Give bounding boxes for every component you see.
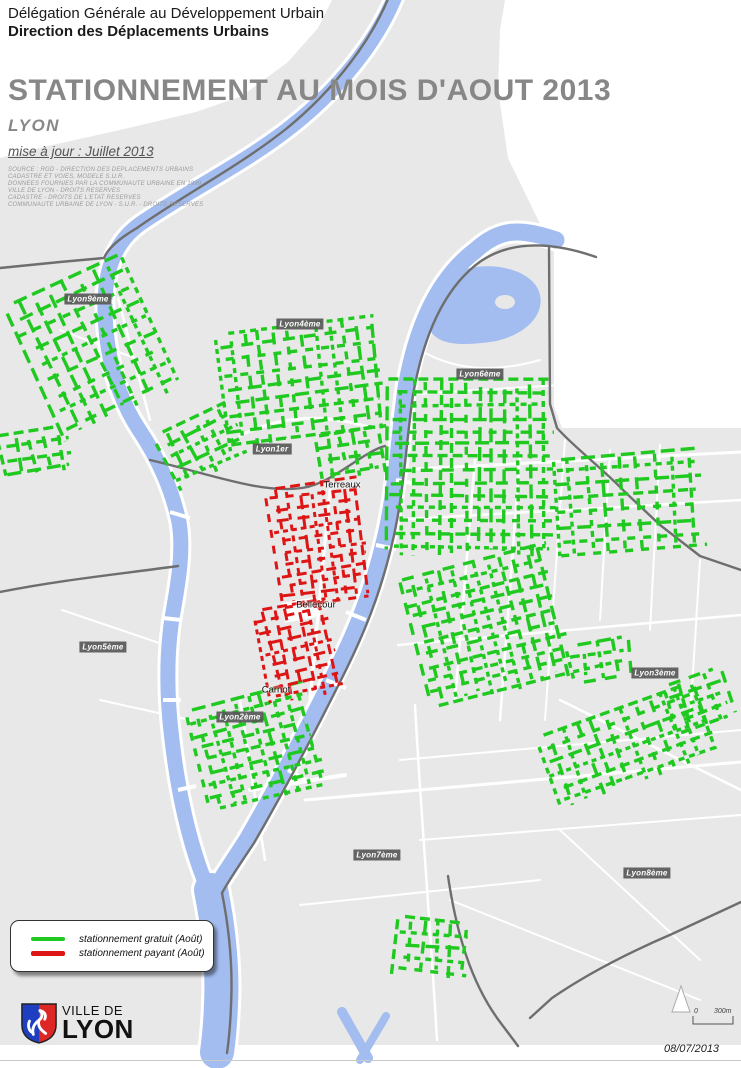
legend-item: stationnement payant (Août) [11, 948, 213, 959]
org-line-1: Délégation Générale au Développement Urb… [8, 5, 611, 22]
update-note: mise à jour : Juillet 2013 [8, 144, 154, 159]
legend-label: stationnement gratuit (Août) [79, 934, 202, 945]
scale-zero: 0 [694, 1008, 698, 1015]
page-subtitle: LYON [8, 116, 611, 136]
page-title: STATIONNEMENT AU MOIS D'AOUT 2013 [8, 74, 611, 108]
source-line: CADASTRE ET VOIES, MODELE S.U.R. [8, 174, 611, 181]
lyon-shield-icon [20, 1002, 58, 1044]
logo-texts: VILLE DE LYON [62, 1002, 134, 1041]
gratuit-line-swatch [31, 937, 65, 941]
source-line: VILLE DE LYON - DROITS RESERVES [8, 188, 611, 195]
lake-island [495, 295, 515, 309]
header: Délégation Générale au Développement Urb… [8, 5, 611, 209]
gratuit-segment [396, 507, 556, 508]
org-line-2: Direction des Déplacements Urbains [8, 23, 611, 40]
source-block: SOURCE : RGD - DIRECTION DES DEPLACEMENT… [8, 167, 611, 209]
map-page: Lyon9èmeLyon4èmeLyon6èmeLyon1erLyon5èmeL… [0, 0, 741, 1068]
scale-distance: 300m [714, 1008, 732, 1015]
logo-text-bottom: LYON [62, 1017, 134, 1041]
source-line: CADASTRE - DROITS DE L'ETAT RESERVES [8, 195, 611, 202]
source-line: DONNEES FOURNIES PAR LA COMMUNAUTE URBAI… [8, 181, 611, 188]
ville-de-lyon-logo: VILLE DE LYON [20, 1002, 134, 1044]
legend-label: stationnement payant (Août) [79, 948, 205, 959]
page-bottom-rule [0, 1060, 741, 1061]
confluence-river [211, 890, 221, 1052]
legend-item: stationnement gratuit (Août) [11, 934, 213, 945]
map-date: 08/07/2013 [664, 1043, 719, 1055]
source-line: COMMUNAUTE URBAINE DE LYON - S.U.R. - DR… [8, 202, 611, 209]
gratuit-segment [397, 392, 547, 393]
source-line: SOURCE : RGD - DIRECTION DES DEPLACEMENT… [8, 167, 611, 174]
legend: stationnement gratuit (Août)stationnemen… [10, 920, 214, 972]
payant-line-swatch [31, 951, 65, 956]
scale-labels: 0 300m [690, 1004, 740, 1024]
